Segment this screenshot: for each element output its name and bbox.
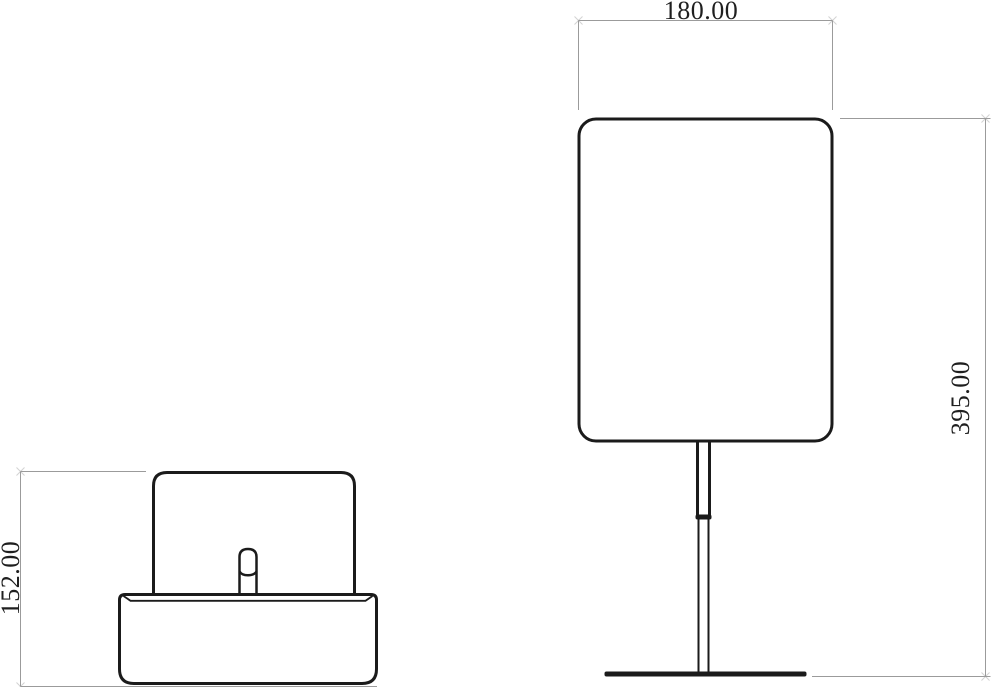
side-view bbox=[120, 473, 377, 684]
front-panel-outline bbox=[579, 119, 832, 441]
front-view bbox=[579, 119, 832, 677]
connector-pin bbox=[240, 549, 257, 595]
stand-upper-tube bbox=[698, 443, 710, 517]
stand-lower-tube bbox=[699, 520, 709, 673]
dimension-label-side-height: 152.00 bbox=[0, 541, 25, 616]
technical-drawing-canvas: 180.00 395.00 152.00 bbox=[0, 0, 1000, 687]
drawing-sheet: 180.00 395.00 152.00 bbox=[0, 0, 1000, 687]
dimension-front-height: 395.00 bbox=[812, 115, 991, 681]
dimension-label-front-width: 180.00 bbox=[664, 0, 739, 25]
dimension-annotations: 180.00 395.00 152.00 bbox=[0, 0, 991, 687]
stand-tube-cap bbox=[696, 515, 712, 520]
dimension-label-front-height: 395.00 bbox=[946, 361, 975, 436]
stand-base-plate bbox=[605, 672, 807, 677]
dimension-front-width: 180.00 bbox=[575, 0, 837, 110]
dock-base-box bbox=[120, 595, 377, 684]
